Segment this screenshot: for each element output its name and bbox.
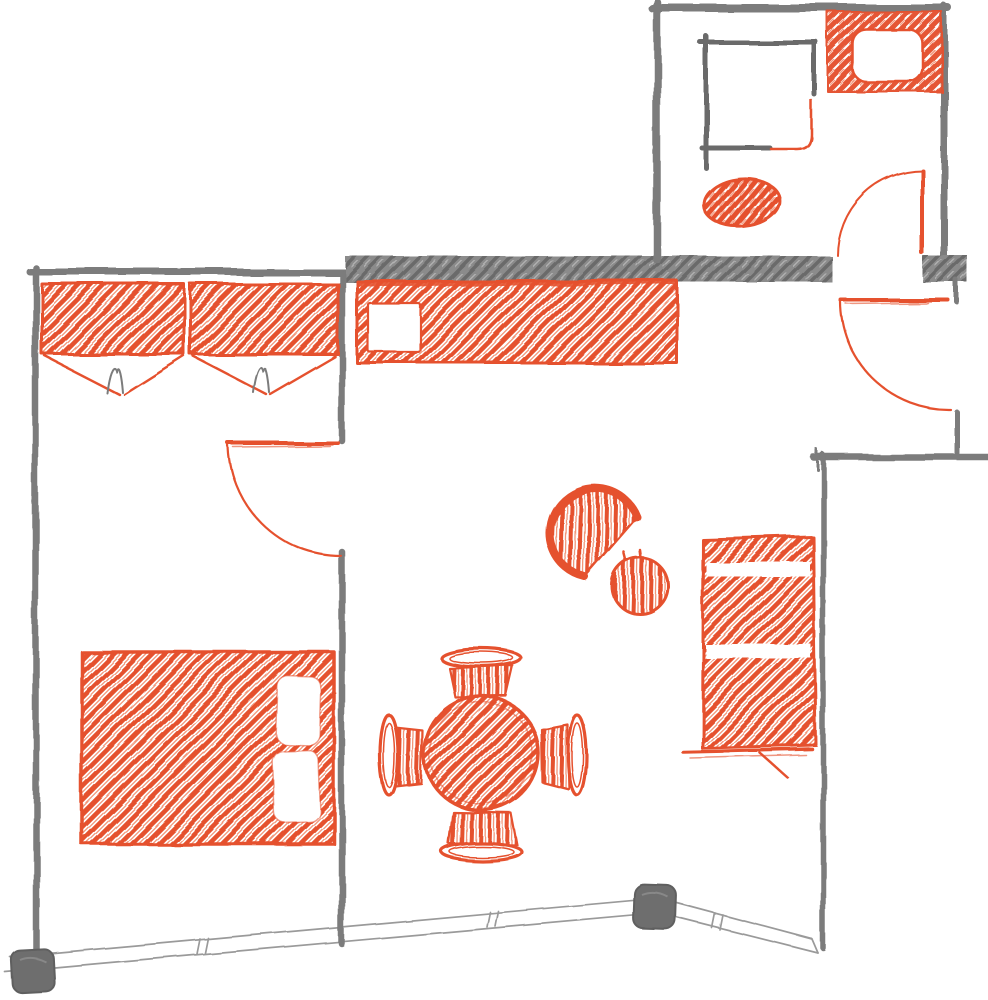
chair-seat bbox=[541, 724, 569, 789]
dining-chair-west bbox=[380, 715, 422, 795]
floor-plan-drawing bbox=[0, 0, 988, 1000]
window-right-outer-line bbox=[677, 903, 812, 939]
wall-block-door-hinge bbox=[923, 256, 968, 283]
side-table-top bbox=[612, 558, 668, 614]
washbasin-counter bbox=[828, 12, 942, 92]
side-table bbox=[612, 550, 668, 614]
chair-backrest bbox=[442, 843, 522, 861]
living-room-furniture bbox=[357, 281, 816, 861]
toilet bbox=[702, 176, 782, 230]
door-entry-swing-arc bbox=[841, 301, 951, 410]
sofa-base-line-echo bbox=[690, 755, 806, 758]
chair-seat bbox=[449, 812, 517, 845]
post-bottom-left bbox=[11, 949, 55, 993]
door-entry-leaf-echo bbox=[846, 303, 928, 304]
kitchen-counter-edge bbox=[360, 283, 674, 284]
dining-chair-north bbox=[441, 649, 521, 697]
door-bedroom-leaf-echo bbox=[233, 446, 330, 447]
window-left-inner-line bbox=[5, 915, 638, 972]
door-bedroom-swing-arc bbox=[228, 443, 341, 556]
bedroom-furniture bbox=[42, 284, 338, 844]
wardrobe-right-open-doors bbox=[193, 356, 335, 394]
dining-table-top bbox=[424, 696, 538, 810]
dining-table bbox=[424, 696, 538, 810]
toilet-bowl bbox=[702, 176, 782, 230]
floor-plan-canvas: Hand-drawn apartment floor plan sketch bbox=[0, 0, 988, 1000]
door-bathroom bbox=[837, 170, 922, 255]
chair-backrest bbox=[380, 715, 398, 795]
window-left-outer-line bbox=[10, 900, 638, 957]
door-bathroom-swing-arc bbox=[837, 170, 922, 255]
pillow-bottom bbox=[272, 749, 320, 823]
chair-seat bbox=[449, 666, 513, 697]
pillow-top bbox=[275, 675, 321, 744]
wardrobe-left bbox=[42, 284, 184, 394]
door-entry bbox=[841, 300, 951, 410]
shower-enclosure bbox=[700, 36, 816, 168]
chair-backrest bbox=[441, 649, 521, 667]
chair-backrest bbox=[568, 715, 586, 795]
sofa-cushion-gap-2 bbox=[705, 644, 811, 658]
kitchen-counter bbox=[357, 281, 677, 363]
wardrobe-right bbox=[190, 284, 338, 394]
sofa-cushion-gap-1 bbox=[706, 562, 810, 576]
dining-set bbox=[380, 649, 586, 861]
dining-chair-east bbox=[541, 715, 586, 795]
shower-screen-curve bbox=[771, 100, 811, 149]
wardrobe-left-body bbox=[42, 284, 184, 354]
bathroom-fixtures bbox=[700, 12, 942, 230]
kitchen-sink bbox=[368, 303, 420, 352]
wall-hatched-band bbox=[345, 256, 832, 282]
wardrobe-left-open-doors bbox=[45, 356, 184, 394]
post-window-apex bbox=[633, 884, 677, 929]
panoramic-window-band bbox=[5, 900, 818, 972]
door-bedroom bbox=[228, 443, 341, 556]
bed bbox=[82, 652, 334, 844]
dining-chair-south bbox=[442, 812, 522, 861]
sofa bbox=[683, 537, 816, 776]
wardrobe-right-body bbox=[190, 284, 338, 354]
washbasin bbox=[853, 30, 923, 82]
